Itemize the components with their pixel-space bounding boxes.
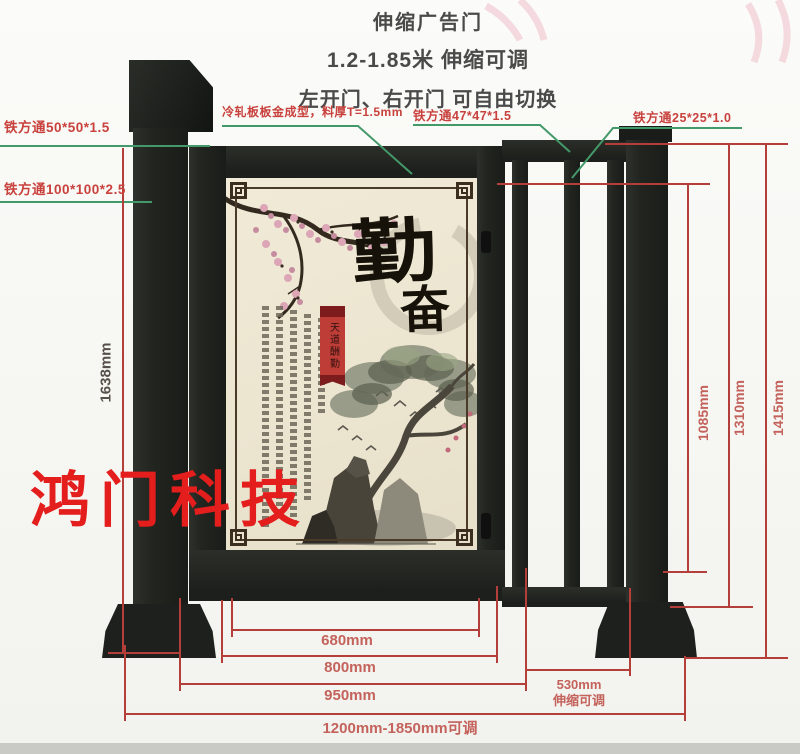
right-pillar	[626, 140, 668, 606]
right-pillar-foot	[595, 602, 697, 658]
door-bottom-rail	[189, 550, 505, 601]
dim-telescopic: 530mm 伸缩可调	[533, 677, 625, 709]
telescopic-bar-2	[564, 160, 580, 592]
calligraphy-char-fen: 奋	[393, 283, 457, 337]
dim-bottom-950: 950mm	[300, 687, 400, 704]
header-text: 伸缩广告门 1.2-1.85米 伸缩可调 左开门、右开门 可自由切换	[168, 0, 688, 112]
telescopic-bar-3	[607, 160, 624, 592]
dim-right-1085: 1085mm	[695, 373, 711, 453]
left-pillar	[133, 128, 188, 612]
dim-right-1310: 1310mm	[731, 368, 747, 448]
poster-corner-ornament	[456, 529, 473, 546]
brand-watermark: 鸿门科技	[30, 452, 310, 539]
callout-tube100: 铁方通100*100*2.5	[4, 178, 126, 198]
product-diagram: 伸缩广告门 1.2-1.85米 伸缩可调 左开门、右开门 可自由切换	[0, 0, 800, 754]
dim-right-1415: 1415mm	[770, 368, 786, 448]
product-title: 伸缩广告门	[168, 6, 688, 35]
product-subtitle: 1.2-1.85米 伸缩可调	[168, 44, 688, 74]
red-seal-ribbon: 天道酬勤	[320, 306, 345, 386]
left-pillar-foot	[102, 604, 216, 658]
telescopic-bar-1	[512, 160, 528, 592]
ribbon-text: 天道酬勤	[328, 322, 338, 370]
callout-tube50: 铁方通50*50*1.5	[4, 116, 110, 136]
dim-bottom-range: 1200mm-1850mm可调	[260, 717, 540, 738]
poster-corner-ornament	[230, 182, 247, 199]
bottom-gray-strip	[0, 743, 800, 754]
door-top-rail	[189, 146, 505, 178]
dim-telescopic-value: 530mm	[533, 677, 625, 693]
dim-bottom-800: 800mm	[300, 659, 400, 676]
dim-bottom-680: 680mm	[297, 632, 397, 649]
poster-corner-ornament	[456, 182, 473, 199]
door-lock-knob-lower	[481, 513, 491, 539]
dim-left-height: 1638mm	[98, 333, 115, 413]
callout-tube25: 铁方通25*25*1.0	[633, 107, 731, 126]
dim-telescopic-note: 伸缩可调	[533, 693, 625, 709]
door-lock-knob-upper	[481, 231, 491, 253]
callout-tube47: 铁方通47*47*1.5	[413, 105, 511, 124]
callout-cold-plate: 冷轧板板金成型，料厚T=1.5mm	[222, 103, 403, 120]
